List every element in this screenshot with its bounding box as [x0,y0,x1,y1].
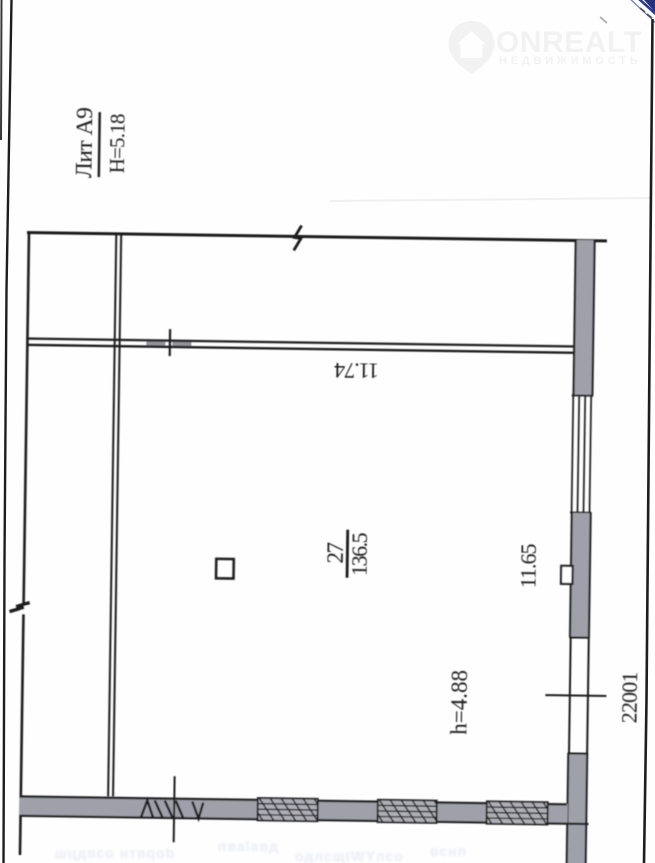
svg-text:шцдвсо нтвqob: шцдвсо нтвqob [55,845,175,861]
svg-text:НЕДВИЖИМОСТЬ: НЕДВИЖИМОСТЬ [499,55,641,67]
svg-text:Н=5.18: Н=5.18 [105,114,130,174]
svg-text:27: 27 [323,542,348,563]
svg-text:22001: 22001 [616,672,642,723]
svg-text:вснп: вснп [430,843,467,859]
svg-text:11.65: 11.65 [515,543,541,588]
svg-text:пваlaвд: пваlaвд [218,838,279,854]
svg-text:Лит А9: Лит А9 [71,107,98,178]
svg-text:136.5: 136.5 [347,532,373,576]
svg-text:11.74: 11.74 [334,358,379,384]
svg-text:h=4.88: h=4.88 [446,670,472,735]
svg-text:одлсщtWYлсо: одлсщtWYлсо [295,848,404,863]
